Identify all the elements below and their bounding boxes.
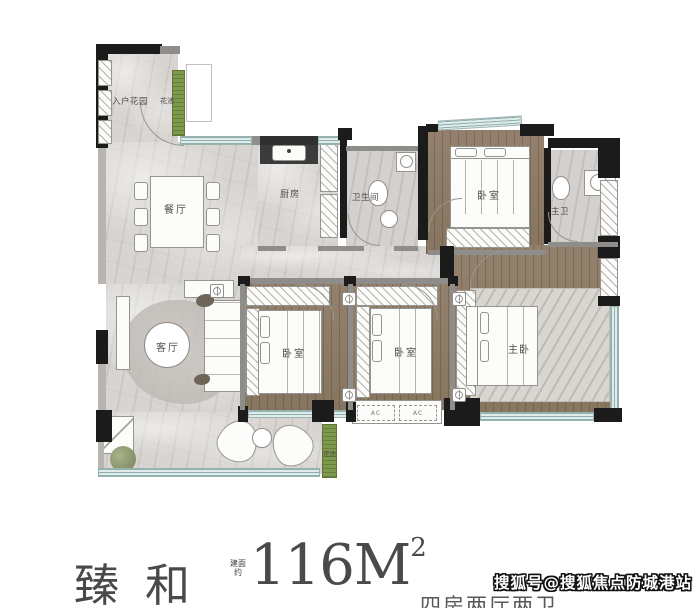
plan-name: 臻和 — [74, 549, 216, 608]
label-flower-bed-top: 花池 — [160, 96, 174, 106]
label-dining-room: 餐厅 — [164, 201, 188, 216]
balcony-railing — [98, 468, 320, 477]
label-kitchen: 厨房 — [280, 187, 300, 200]
label-master-bathroom: 主卫 — [551, 205, 569, 217]
ac-label: AC — [413, 410, 423, 417]
wall — [598, 250, 620, 258]
window — [180, 136, 252, 145]
pillow — [260, 342, 270, 364]
label-living-room: 客厅 — [156, 339, 180, 354]
wall — [318, 246, 346, 251]
ac-platform: AC AC — [352, 400, 442, 424]
wall — [394, 246, 418, 251]
label-bedroom-left: 卧室 — [282, 345, 306, 360]
tv-console — [116, 296, 130, 370]
wall — [594, 408, 622, 422]
wall — [240, 278, 352, 284]
ceiling-fan-icon — [210, 284, 224, 298]
window-box — [98, 60, 112, 86]
kitchen-cabinet — [320, 194, 338, 238]
window — [438, 115, 522, 130]
wall — [346, 246, 364, 251]
railing — [186, 64, 212, 122]
ceiling-fan-icon — [452, 388, 466, 402]
window-box — [98, 120, 112, 144]
wall — [418, 126, 428, 240]
label-entry-garden: 入户花园 — [112, 95, 148, 107]
wall — [98, 148, 106, 284]
utility-shaft — [600, 258, 618, 298]
area-value: 116M2 — [250, 533, 427, 598]
area-prefix-line2: 约 — [229, 568, 247, 577]
pillow — [372, 340, 382, 362]
washing-machine-drum — [400, 155, 413, 168]
wall — [240, 284, 245, 410]
dining-chair — [206, 208, 220, 226]
wall — [426, 124, 438, 132]
dining-chair — [206, 234, 220, 252]
wall — [346, 146, 418, 151]
kitchen-faucet — [287, 149, 291, 153]
ac-label: AC — [371, 410, 381, 417]
ac-unit: AC — [357, 405, 395, 421]
area-number: 116M — [250, 533, 410, 598]
area-prefix-line1: 建面 — [229, 559, 247, 568]
wall — [598, 296, 620, 306]
balcony-table — [252, 428, 272, 448]
pillow — [480, 312, 489, 334]
wall — [544, 148, 551, 244]
dining-chair — [206, 182, 220, 200]
area-prefix: 建面 约 — [229, 559, 247, 577]
dining-chair — [134, 208, 148, 226]
wall — [548, 138, 604, 148]
dining-chair — [134, 182, 148, 200]
label-bathroom: 卫生间 — [352, 191, 379, 203]
watermark: 搜狐号@搜狐焦点防城港站 — [494, 571, 692, 593]
label-flower-bed-bottom: 花池 — [323, 448, 336, 458]
window — [480, 412, 594, 421]
pillow — [480, 340, 489, 362]
wall — [520, 124, 554, 136]
window-box — [98, 90, 112, 116]
ceiling-fan-icon — [342, 388, 356, 402]
bathroom-sink — [380, 210, 398, 228]
nightstand-column — [356, 306, 370, 398]
floor-plan-page: AC AC 入户花园 花池 餐厅 厨房 卫生间 卧室 主卫 客厅 卧室 卧室 主… — [0, 0, 695, 608]
area-exponent: 2 — [410, 533, 427, 563]
label-master-bedroom: 主卧 — [508, 341, 530, 356]
wall — [312, 400, 334, 422]
wall — [160, 46, 180, 54]
wall — [96, 410, 112, 442]
wall — [98, 364, 106, 412]
kitchen-sink — [272, 145, 306, 161]
wall — [340, 140, 347, 238]
dining-chair — [134, 234, 148, 252]
bed-master-headboard — [466, 306, 478, 386]
wall — [548, 242, 618, 247]
wall — [96, 330, 108, 364]
wall — [260, 136, 318, 145]
pillow — [484, 148, 506, 157]
wall — [440, 246, 454, 280]
ceiling-fan-icon — [452, 292, 466, 306]
window — [610, 306, 619, 410]
ac-unit: AC — [399, 405, 437, 421]
pillow — [455, 148, 477, 157]
label-bedroom-top: 卧室 — [477, 187, 501, 202]
pillow — [372, 314, 382, 336]
wall — [258, 246, 286, 251]
ceiling-fan-icon — [342, 292, 356, 306]
wall — [598, 138, 620, 178]
window-seat — [600, 180, 618, 236]
wall — [338, 128, 352, 140]
kitchen-cabinet — [320, 142, 338, 192]
label-bedroom-middle: 卧室 — [394, 344, 418, 359]
wall — [252, 136, 260, 145]
pillow — [260, 316, 270, 338]
master-toilet — [552, 176, 570, 200]
